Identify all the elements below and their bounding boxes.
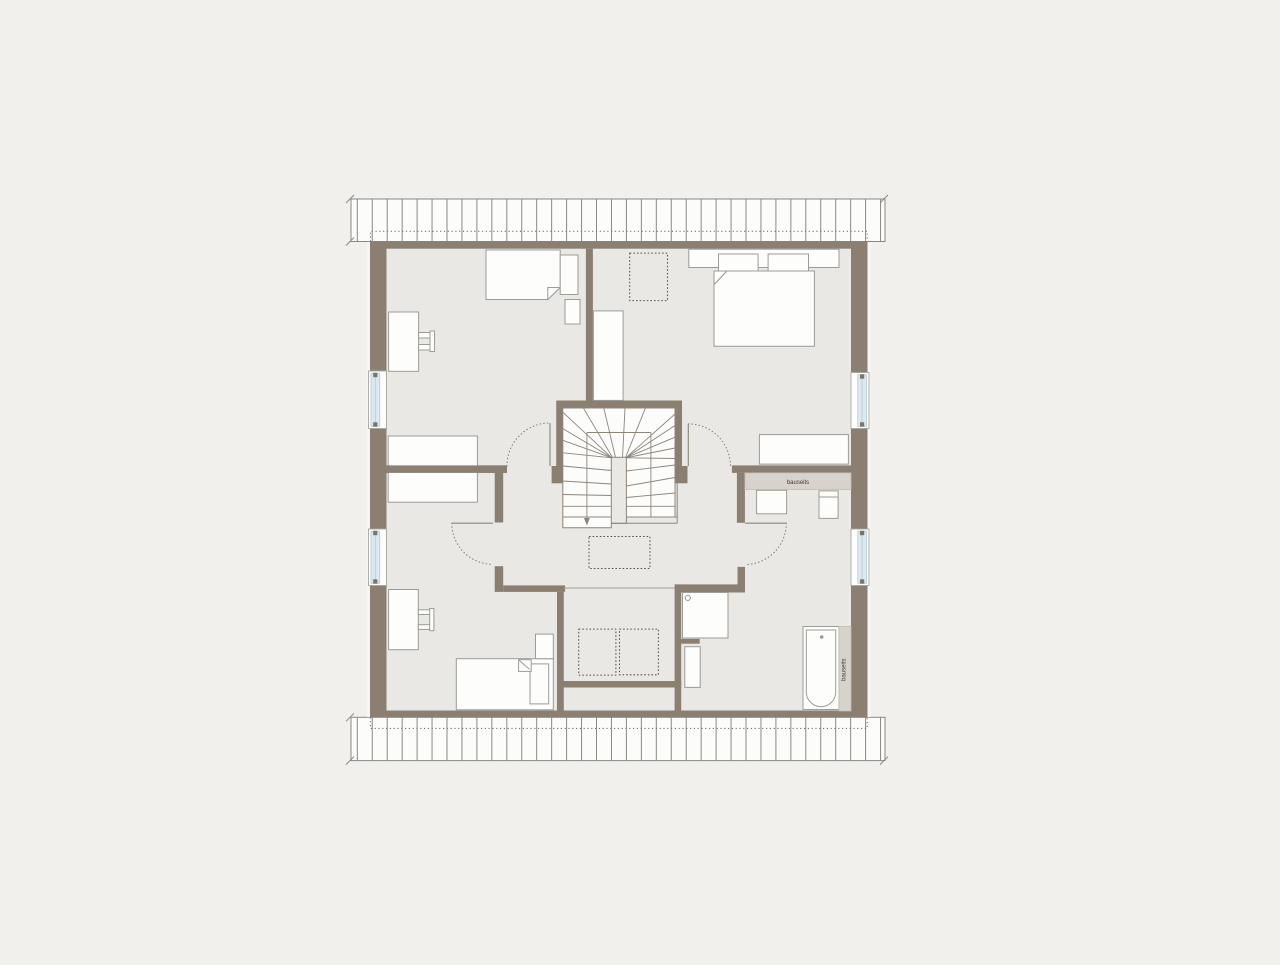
svg-text:bauseits: bauseits — [842, 659, 848, 681]
svg-text:bauseits: bauseits — [787, 480, 809, 486]
